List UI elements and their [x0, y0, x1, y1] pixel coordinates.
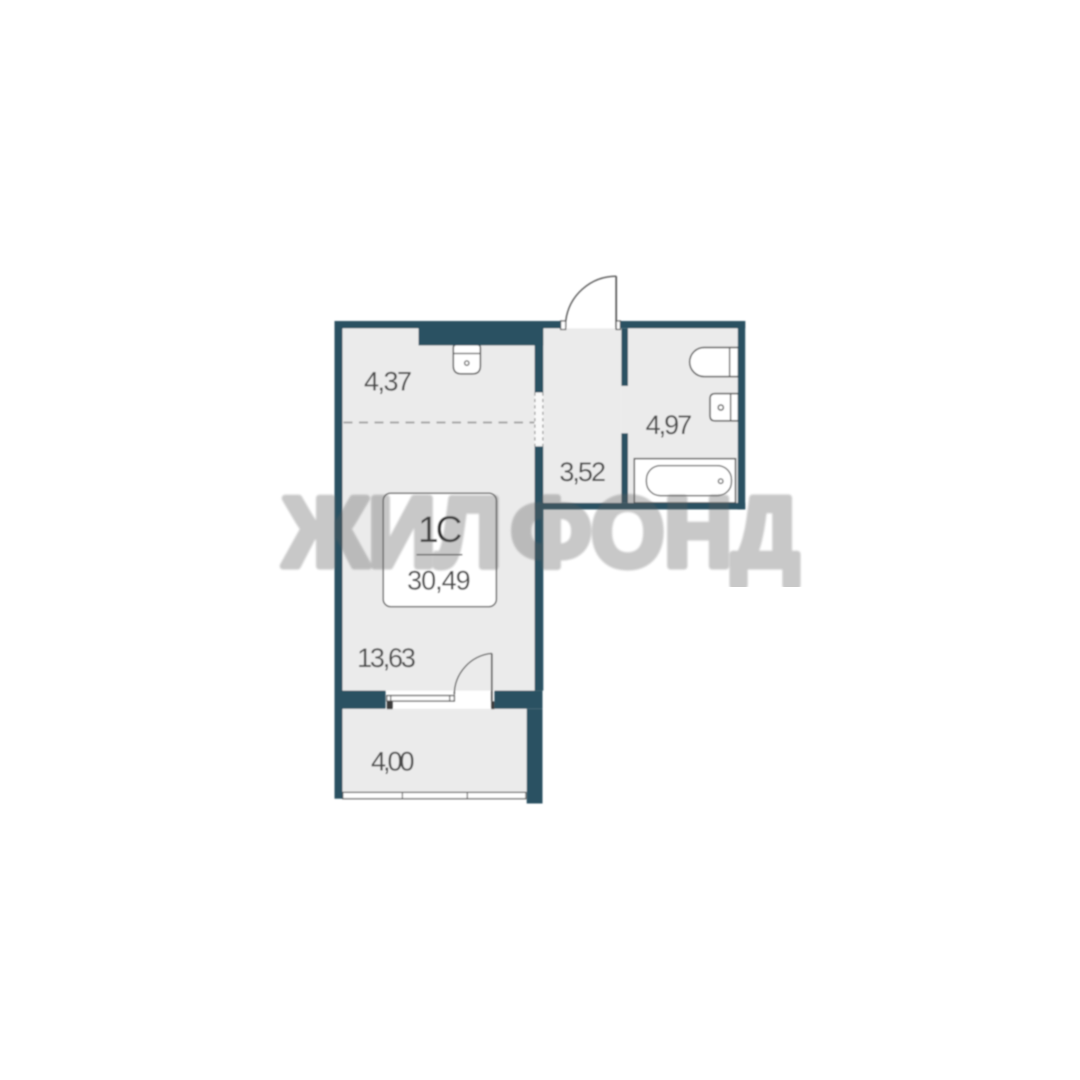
svg-text:4,97: 4,97 — [646, 410, 692, 440]
svg-text:13,63: 13,63 — [357, 643, 415, 673]
svg-text:4,00: 4,00 — [371, 746, 414, 776]
svg-text:4,37: 4,37 — [364, 367, 411, 397]
svg-text:ЖИЛФОНД: ЖИЛФОНД — [282, 478, 798, 587]
